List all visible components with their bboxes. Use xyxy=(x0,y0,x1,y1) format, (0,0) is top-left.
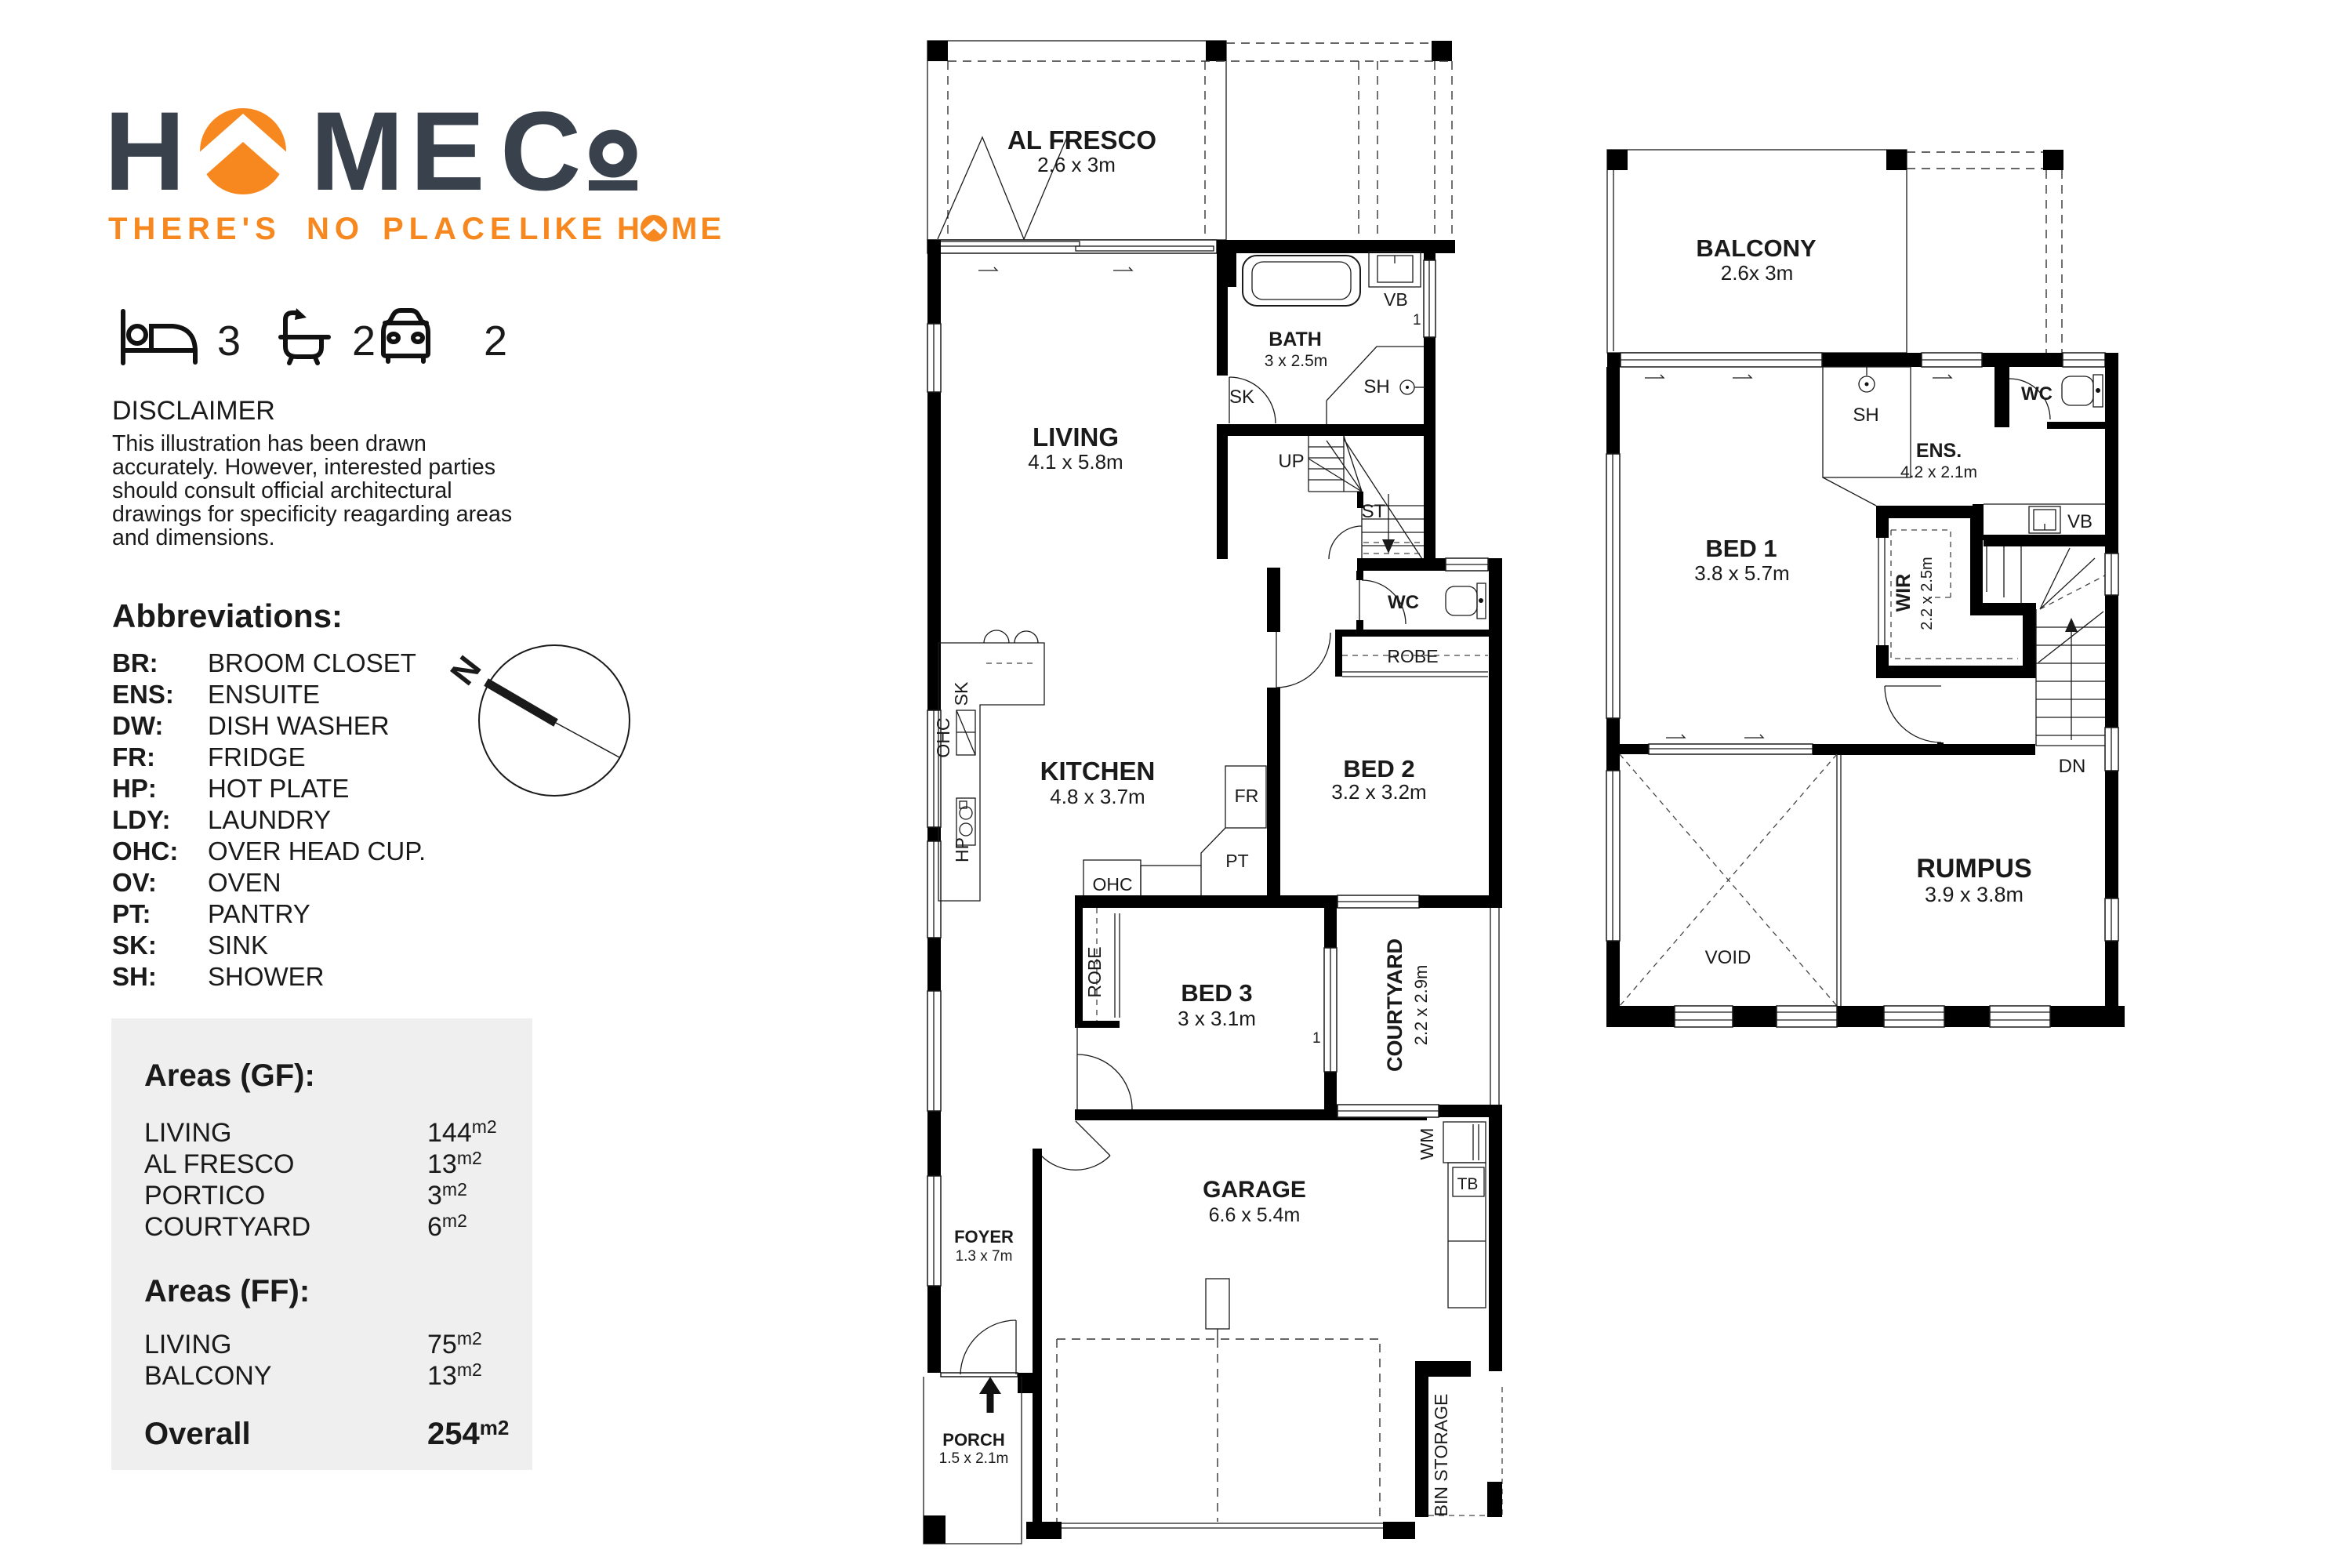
svg-text:and dimensions.: and dimensions. xyxy=(112,525,275,550)
svg-text:SK:: SK: xyxy=(112,931,157,960)
svg-text:SK: SK xyxy=(951,681,971,706)
svg-text:COURTYARD: COURTYARD xyxy=(144,1212,310,1242)
svg-text:BALCONY: BALCONY xyxy=(144,1361,272,1391)
svg-text:BALCONY: BALCONY xyxy=(1696,234,1817,262)
svg-text:VOID: VOID xyxy=(1705,947,1751,968)
svg-text:HP: HP xyxy=(952,837,972,862)
svg-text:4.2 x 2.1m: 4.2 x 2.1m xyxy=(1900,463,1977,481)
svg-text:OHC: OHC xyxy=(1092,874,1132,895)
svg-text:3.9 x 3.8m: 3.9 x 3.8m xyxy=(1925,883,2024,906)
svg-text:SK: SK xyxy=(1229,387,1254,408)
svg-text:WC: WC xyxy=(1388,592,1419,613)
svg-text:BED 1: BED 1 xyxy=(1705,535,1777,562)
svg-text:2: 2 xyxy=(484,318,507,365)
svg-text:COURTYARD: COURTYARD xyxy=(1383,938,1406,1072)
svg-text:BED 2: BED 2 xyxy=(1343,755,1414,782)
svg-text:OHC: OHC xyxy=(933,717,953,757)
svg-text:OVEN: OVEN xyxy=(208,868,281,897)
svg-text:SH: SH xyxy=(1853,405,1878,426)
svg-text:3 x 3.1m: 3 x 3.1m xyxy=(1178,1007,1256,1030)
svg-text:OVER HEAD CUP.: OVER HEAD CUP. xyxy=(208,837,426,866)
svg-text:1: 1 xyxy=(1413,312,1421,328)
svg-text:WIR: WIR xyxy=(1893,574,1915,612)
svg-text:4.8 x 3.7m: 4.8 x 3.7m xyxy=(1050,785,1145,808)
svg-text:HP:: HP: xyxy=(112,774,157,803)
svg-text:2: 2 xyxy=(352,318,376,365)
svg-text:TB: TB xyxy=(1457,1175,1479,1193)
svg-text:1.3 x 7m: 1.3 x 7m xyxy=(956,1248,1013,1265)
svg-text:PORTICO: PORTICO xyxy=(144,1181,265,1210)
svg-text:WM: WM xyxy=(1417,1128,1437,1160)
svg-text:VB: VB xyxy=(2067,511,2092,532)
svg-text:2.6x 3m: 2.6x 3m xyxy=(1721,261,1794,285)
svg-text:AL FRESCO: AL FRESCO xyxy=(144,1149,294,1179)
svg-text:PT: PT xyxy=(1225,851,1248,871)
svg-text:BROOM CLOSET: BROOM CLOSET xyxy=(208,648,416,677)
svg-text:H: H xyxy=(104,89,190,214)
svg-text:3 x 2.5m: 3 x 2.5m xyxy=(1265,352,1328,370)
svg-text:PLACE: PLACE xyxy=(383,212,517,246)
svg-text:should consult official archit: should consult official architectural xyxy=(112,478,452,503)
svg-text:RUMPUS: RUMPUS xyxy=(1916,854,2031,884)
svg-text:FRIDGE: FRIDGE xyxy=(208,742,306,771)
svg-text:ENS:: ENS: xyxy=(112,680,174,709)
svg-text:ROBE: ROBE xyxy=(1387,646,1438,666)
svg-text:PT:: PT: xyxy=(112,899,151,928)
svg-text:SH: SH xyxy=(1363,376,1389,397)
svg-text:DISCLAIMER: DISCLAIMER xyxy=(112,396,275,426)
svg-text:NO: NO xyxy=(307,212,365,246)
svg-text:LDY:: LDY: xyxy=(112,805,171,834)
svg-text:ENSUITE: ENSUITE xyxy=(208,680,320,709)
svg-text:OV:: OV: xyxy=(112,868,157,897)
svg-text:LIVING: LIVING xyxy=(144,1330,231,1359)
svg-text:accurately. However, intereste: accurately. However, interested parties xyxy=(112,455,495,480)
svg-text:FOYER: FOYER xyxy=(954,1227,1014,1247)
svg-text:SH:: SH: xyxy=(112,962,157,991)
svg-text:DW:: DW: xyxy=(112,711,163,740)
svg-text:3: 3 xyxy=(217,318,241,365)
svg-text:1.5 x 2.1m: 1.5 x 2.1m xyxy=(939,1450,1009,1467)
svg-text:BR:: BR: xyxy=(112,648,158,677)
svg-text:Areas (FF):: Areas (FF): xyxy=(144,1274,310,1308)
svg-text:ROBE: ROBE xyxy=(1084,946,1105,997)
svg-text:1: 1 xyxy=(1312,1030,1321,1047)
svg-text:ME: ME xyxy=(310,89,492,214)
svg-text:LAUNDRY: LAUNDRY xyxy=(208,805,331,834)
svg-text:AL FRESCO: AL FRESCO xyxy=(1007,125,1156,154)
svg-text:Areas (GF):: Areas (GF): xyxy=(144,1058,315,1093)
svg-text:BED 3: BED 3 xyxy=(1181,979,1252,1007)
svg-text:ME: ME xyxy=(671,212,724,246)
svg-text:C: C xyxy=(500,89,581,214)
svg-text:drawings for specificity reaga: drawings for specificity reagarding area… xyxy=(112,502,512,527)
svg-text:GARAGE: GARAGE xyxy=(1203,1177,1306,1203)
svg-text:FR:: FR: xyxy=(112,742,155,771)
svg-text:Abbreviations:: Abbreviations: xyxy=(112,597,343,634)
svg-text:SINK: SINK xyxy=(208,931,268,960)
svg-text:6.6 x 5.4m: 6.6 x 5.4m xyxy=(1209,1204,1301,1226)
svg-text:ENS.: ENS. xyxy=(1916,440,1962,462)
svg-text:2.2 x 2.9m: 2.2 x 2.9m xyxy=(1411,965,1431,1046)
svg-text:PANTRY: PANTRY xyxy=(208,899,310,928)
svg-text:THERE'S: THERE'S xyxy=(108,212,281,246)
svg-text:LIVING: LIVING xyxy=(144,1118,231,1148)
svg-text:4.1 x 5.8m: 4.1 x 5.8m xyxy=(1028,450,1123,474)
svg-text:This illustration has been dra: This illustration has been drawn xyxy=(112,431,426,456)
svg-text:VB: VB xyxy=(1384,289,1408,310)
svg-text:FR: FR xyxy=(1235,786,1259,806)
svg-text:WC: WC xyxy=(2021,383,2053,405)
svg-text:Overall: Overall xyxy=(144,1417,251,1451)
svg-text:2.2 x 2.5m: 2.2 x 2.5m xyxy=(1918,557,1936,630)
svg-text:ST: ST xyxy=(1362,501,1386,522)
svg-text:BIN STORAGE: BIN STORAGE xyxy=(1431,1394,1451,1517)
svg-text:OHC:: OHC: xyxy=(112,837,178,866)
svg-text:3.8 x 5.7m: 3.8 x 5.7m xyxy=(1694,561,1789,585)
svg-text:DISH WASHER: DISH WASHER xyxy=(208,711,390,740)
svg-text:DN: DN xyxy=(2059,756,2086,777)
svg-text:UP: UP xyxy=(1278,451,1304,472)
svg-text:BATH: BATH xyxy=(1269,328,1322,350)
svg-text:SHOWER: SHOWER xyxy=(208,962,325,991)
svg-text:2.6 x 3m: 2.6 x 3m xyxy=(1037,153,1116,176)
svg-text:3.2 x 3.2m: 3.2 x 3.2m xyxy=(1331,780,1426,804)
svg-text:LIVING: LIVING xyxy=(1033,423,1119,452)
svg-text:PORCH: PORCH xyxy=(942,1430,1004,1450)
svg-text:HOT PLATE: HOT PLATE xyxy=(208,774,349,803)
svg-text:KITCHEN: KITCHEN xyxy=(1040,757,1156,786)
svg-text:LIKE: LIKE xyxy=(519,212,606,246)
